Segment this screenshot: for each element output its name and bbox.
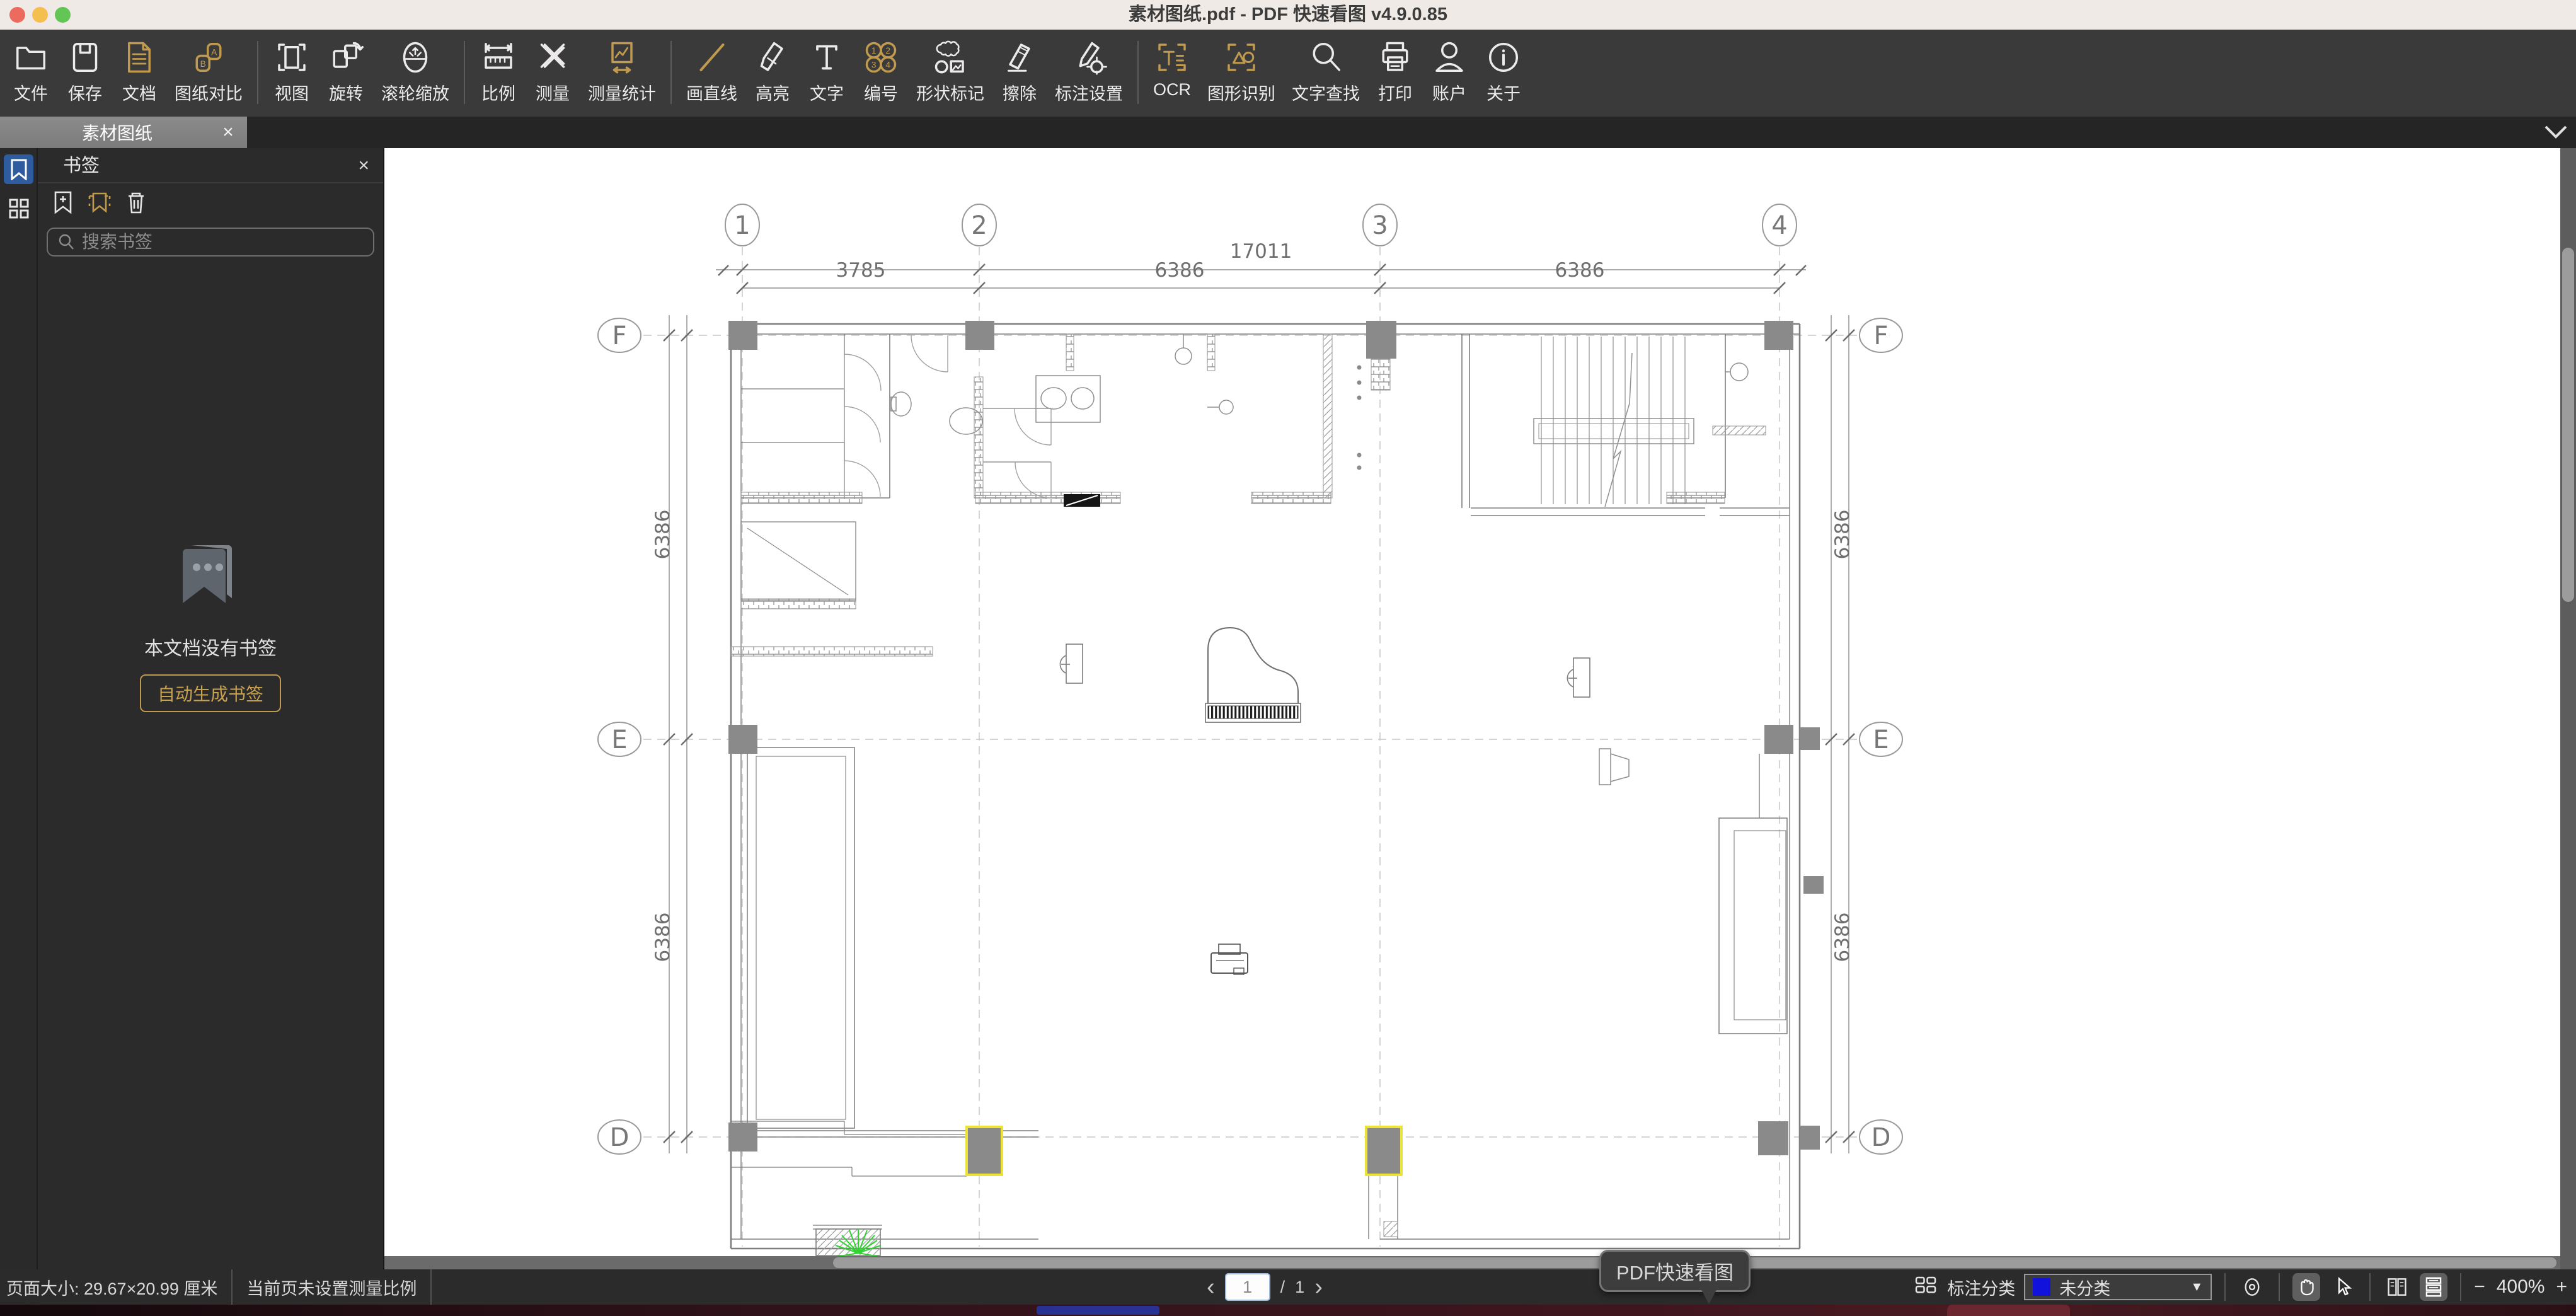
vertical-scrollbar bbox=[2560, 148, 2576, 1269]
svg-text:E: E bbox=[1873, 725, 1889, 754]
toolbar-button-measure[interactable]: 测量 bbox=[526, 30, 580, 105]
ceiling-dots bbox=[1357, 366, 1362, 470]
toolbar-label: 高亮 bbox=[756, 80, 790, 105]
draw-line-icon bbox=[693, 38, 731, 76]
svg-text:6386: 6386 bbox=[652, 913, 674, 962]
toolbar-button-numbering[interactable]: 1234编号 bbox=[854, 30, 908, 105]
toolbar-label: 关于 bbox=[1486, 80, 1521, 105]
bookmarks-panel: 书签 × bbox=[38, 148, 384, 1269]
toolbar-button-save[interactable]: 保存 bbox=[58, 30, 112, 105]
empty-bookmarks-icon bbox=[180, 539, 241, 604]
svg-text:6386: 6386 bbox=[1555, 259, 1605, 282]
toolbar-label: 滚轮缩放 bbox=[381, 80, 449, 105]
search-input[interactable] bbox=[81, 231, 373, 253]
toolbar-label: 擦除 bbox=[1003, 80, 1037, 105]
svg-text:3785: 3785 bbox=[836, 259, 886, 282]
thumbnails-rail-button[interactable] bbox=[4, 193, 33, 223]
measure-scale-status: 当前页未设置测量比例 bbox=[233, 1269, 432, 1305]
toolbar-label: 编号 bbox=[864, 80, 898, 105]
toolbar-divider bbox=[464, 41, 465, 104]
toolbar-button-annot-settings[interactable]: 标注设置 bbox=[1047, 30, 1131, 105]
toolbar-button-account[interactable]: 账户 bbox=[1422, 30, 1476, 105]
page-separator: / bbox=[1280, 1278, 1285, 1297]
annotation-category-icon bbox=[1913, 1274, 1938, 1300]
tab-close-icon[interactable]: × bbox=[209, 122, 247, 143]
printer-symbol bbox=[1211, 944, 1248, 974]
svg-text:6386: 6386 bbox=[1155, 259, 1205, 282]
toolbar-label: 文件 bbox=[14, 80, 48, 105]
svg-text:F: F bbox=[612, 321, 626, 350]
visibility-toggle-button[interactable] bbox=[2238, 1273, 2266, 1301]
svg-text:2: 2 bbox=[971, 211, 987, 240]
two-page-view-button[interactable] bbox=[2383, 1273, 2411, 1301]
vertical-scrollbar-thumb[interactable] bbox=[2562, 248, 2574, 602]
total-pages: 1 bbox=[1295, 1278, 1304, 1297]
save-icon bbox=[66, 38, 104, 76]
bookmarks-panel-header: 书签 × bbox=[38, 148, 383, 183]
tab-bar: 素材图纸 × bbox=[0, 117, 2576, 148]
current-page-input[interactable] bbox=[1225, 1273, 1270, 1301]
zoom-out-button[interactable]: − bbox=[2474, 1276, 2485, 1298]
toolbar-button-highlight[interactable]: 高亮 bbox=[745, 30, 800, 105]
compare-icon: AB bbox=[190, 38, 227, 76]
toolbar-label: 图形识别 bbox=[1207, 80, 1275, 105]
bookmarks-panel-close-icon[interactable]: × bbox=[358, 148, 369, 183]
svg-text:1: 1 bbox=[734, 211, 750, 240]
status-bar: 页面大小: 29.67×20.99 厘米 当前页未设置测量比例 ‹ / 1 › … bbox=[0, 1269, 2576, 1305]
toolbar-label: 文字 bbox=[810, 80, 844, 105]
toolbar-label: 形状标记 bbox=[916, 80, 984, 105]
page-navigation: ‹ / 1 › bbox=[1207, 1269, 1323, 1305]
page-size-status: 页面大小: 29.67×20.99 厘米 bbox=[0, 1269, 233, 1305]
annotation-category-dropdown[interactable]: 未分类 ▼ bbox=[2024, 1274, 2212, 1300]
main-toolbar: 文件保存文档AB图纸对比视图旋转滚轮缩放比例测量测量统计画直线高亮文字1234编… bbox=[0, 30, 2576, 117]
grand-piano bbox=[1205, 628, 1301, 722]
category-color-swatch bbox=[2033, 1278, 2050, 1296]
text-search-icon bbox=[1307, 38, 1345, 76]
erase-icon bbox=[1001, 38, 1038, 76]
bookmarks-rail-button[interactable] bbox=[4, 154, 33, 184]
toolbar-divider bbox=[257, 41, 258, 104]
dock-tooltip-text: PDF快速看图 bbox=[1599, 1250, 1751, 1292]
dropdown-caret-icon: ▼ bbox=[2190, 1280, 2203, 1295]
previous-page-button[interactable]: ‹ bbox=[1207, 1271, 1215, 1303]
toolbar-button-view[interactable]: 视图 bbox=[265, 30, 319, 105]
about-icon bbox=[1485, 38, 1522, 76]
window-title: 素材图纸.pdf - PDF 快速看图 v4.9.0.85 bbox=[0, 0, 2576, 30]
reception-desk bbox=[1064, 494, 1100, 507]
svg-text:1: 1 bbox=[871, 46, 877, 55]
toolbar-button-print[interactable]: 打印 bbox=[1368, 30, 1422, 105]
sidebar-rail bbox=[0, 148, 38, 1269]
toolbar-button-shape-mark[interactable]: 形状标记 bbox=[908, 30, 992, 105]
toolbar-button-text[interactable]: 文字 bbox=[800, 30, 854, 105]
delete-bookmark-icon[interactable] bbox=[124, 190, 149, 215]
add-bookmark-icon[interactable] bbox=[50, 190, 76, 215]
toolbar-label: 图纸对比 bbox=[175, 80, 243, 105]
pan-tool-button[interactable] bbox=[2292, 1273, 2320, 1301]
toolbar-label: OCR bbox=[1153, 80, 1191, 100]
toolbar-label: 标注设置 bbox=[1055, 80, 1123, 105]
toolbar-button-folder[interactable]: 文件 bbox=[4, 30, 58, 105]
toolbar-button-measure-stats[interactable]: 测量统计 bbox=[580, 30, 664, 105]
toolbar-label: 视图 bbox=[275, 80, 309, 105]
toolbar-label: 测量 bbox=[536, 80, 570, 105]
svg-text:4: 4 bbox=[1771, 211, 1787, 240]
folder-icon bbox=[12, 38, 50, 76]
fixtures bbox=[891, 334, 1748, 434]
toolbar-button-erase[interactable]: 擦除 bbox=[992, 30, 1047, 105]
left-rooms bbox=[741, 522, 856, 1128]
svg-text:E: E bbox=[611, 725, 627, 754]
zoom-level: 400% bbox=[2497, 1276, 2545, 1298]
tab-document[interactable]: 素材图纸 × bbox=[0, 117, 247, 148]
plant-symbol bbox=[813, 1225, 882, 1256]
ocr-icon bbox=[1153, 38, 1191, 76]
next-page-button[interactable]: › bbox=[1314, 1271, 1323, 1303]
toolbar-label: 旋转 bbox=[329, 80, 363, 105]
toolbar-divider bbox=[1137, 41, 1139, 104]
toolbar-label: 画直线 bbox=[686, 80, 737, 105]
measure-icon bbox=[534, 38, 572, 76]
toolbar-button-shape-recognize[interactable]: 图形识别 bbox=[1199, 30, 1284, 105]
document-icon bbox=[120, 38, 158, 76]
door-arcs bbox=[844, 335, 1051, 498]
floor-plan-drawing: 17011 3785 6386 6386 6386 6386 6386 6386 bbox=[384, 148, 2560, 1256]
svg-text:6386: 6386 bbox=[1831, 913, 1854, 962]
document-canvas[interactable]: 17011 3785 6386 6386 6386 6386 6386 6386 bbox=[384, 148, 2560, 1256]
search-icon bbox=[57, 233, 76, 251]
toolbar-button-document[interactable]: 文档 bbox=[112, 30, 166, 105]
toolbar-label: 比例 bbox=[481, 80, 515, 105]
svg-text:2: 2 bbox=[885, 46, 890, 55]
toolbar-button-compare[interactable]: AB图纸对比 bbox=[166, 30, 251, 105]
svg-text:4: 4 bbox=[885, 60, 890, 69]
toolbar-button-draw-line[interactable]: 画直线 bbox=[678, 30, 745, 105]
toolbar-button-text-search[interactable]: 文字查找 bbox=[1284, 30, 1368, 105]
walls bbox=[731, 324, 1800, 1249]
title-bar: 素材图纸.pdf - PDF 快速看图 v4.9.0.85 bbox=[0, 0, 2576, 30]
wheel-zoom-icon bbox=[396, 38, 434, 76]
bookmarks-empty-state: 本文档没有书签 自动生成书签 bbox=[38, 539, 383, 712]
annot-settings-icon bbox=[1070, 38, 1108, 76]
svg-text:A: A bbox=[211, 47, 217, 57]
svg-text:6386: 6386 bbox=[652, 510, 674, 560]
toolbar-label: 保存 bbox=[68, 80, 102, 105]
shape-mark-icon bbox=[931, 38, 969, 76]
hatched-walls bbox=[731, 334, 1766, 1237]
auto-generate-bookmarks-button[interactable]: 自动生成书签 bbox=[140, 674, 281, 712]
grid-axes bbox=[643, 247, 1857, 1247]
toolbar-button-wheel-zoom[interactable]: 滚轮缩放 bbox=[373, 30, 457, 105]
text-icon bbox=[808, 38, 846, 76]
svg-text:3: 3 bbox=[1372, 211, 1388, 240]
category-value: 未分类 bbox=[2059, 1275, 2182, 1300]
toolbar-divider bbox=[670, 41, 672, 104]
toolbar-button-rotate[interactable]: 旋转 bbox=[319, 30, 373, 105]
tab-label: 素材图纸 bbox=[0, 120, 209, 145]
print-icon bbox=[1376, 38, 1414, 76]
svg-text:F: F bbox=[1873, 321, 1888, 350]
select-tool-button[interactable] bbox=[2329, 1273, 2357, 1301]
horizontal-scrollbar bbox=[384, 1256, 2560, 1269]
empty-bookmarks-text: 本文档没有书签 bbox=[38, 633, 383, 661]
dock-glow-item bbox=[1947, 1305, 2070, 1316]
toolbar-label: 账户 bbox=[1432, 80, 1466, 105]
highlighted-columns bbox=[967, 1127, 1401, 1175]
annotation-category-label: 标注分类 bbox=[1947, 1275, 2015, 1300]
toolbar-label: 文字查找 bbox=[1292, 80, 1360, 105]
locate-bookmark-icon[interactable] bbox=[87, 190, 112, 215]
dock-blue-item bbox=[1037, 1306, 1159, 1315]
toolbar-label: 打印 bbox=[1378, 80, 1412, 105]
toolbar-button-ocr[interactable]: OCR bbox=[1145, 30, 1199, 100]
dock-tooltip-tail bbox=[1699, 1285, 1719, 1304]
columns bbox=[728, 321, 1824, 1155]
staircase bbox=[1534, 337, 1694, 507]
pdf-viewer-window: 素材图纸.pdf - PDF 快速看图 v4.9.0.85 文件保存文档AB图纸… bbox=[0, 0, 2576, 1316]
zoom-in-button[interactable]: + bbox=[2556, 1276, 2567, 1298]
dock-tooltip: PDF快速看图 bbox=[1599, 1250, 1751, 1292]
measure-stats-icon bbox=[603, 38, 641, 76]
svg-text:3: 3 bbox=[871, 60, 877, 69]
svg-text:B: B bbox=[200, 59, 206, 69]
bookmarks-toolbar bbox=[50, 190, 149, 215]
rotate-icon bbox=[327, 38, 365, 76]
toolbar-label: 测量统计 bbox=[588, 80, 656, 105]
svg-text:D: D bbox=[610, 1123, 630, 1152]
desktop-dock-strip bbox=[0, 1305, 2576, 1316]
view-icon bbox=[273, 38, 311, 76]
shape-recognize-icon bbox=[1222, 38, 1260, 76]
speaker-symbols bbox=[1060, 644, 1590, 697]
toolbar-button-about[interactable]: 关于 bbox=[1476, 30, 1531, 105]
bookmark-search-box bbox=[47, 228, 374, 257]
toolbar-label: 文档 bbox=[122, 80, 156, 105]
svg-text:D: D bbox=[1872, 1123, 1891, 1152]
continuous-view-button[interactable] bbox=[2420, 1273, 2447, 1301]
highlight-icon bbox=[754, 38, 791, 76]
toolbar-button-scale-ruler[interactable]: 比例 bbox=[471, 30, 526, 105]
numbering-icon: 1234 bbox=[862, 38, 900, 76]
svg-text:6386: 6386 bbox=[1831, 510, 1854, 560]
svg-text:17011: 17011 bbox=[1230, 240, 1292, 263]
chevron-down-icon[interactable] bbox=[2541, 122, 2571, 143]
scale-ruler-icon bbox=[480, 38, 517, 76]
account-icon bbox=[1430, 38, 1468, 76]
bookmarks-panel-title: 书签 bbox=[63, 148, 100, 183]
